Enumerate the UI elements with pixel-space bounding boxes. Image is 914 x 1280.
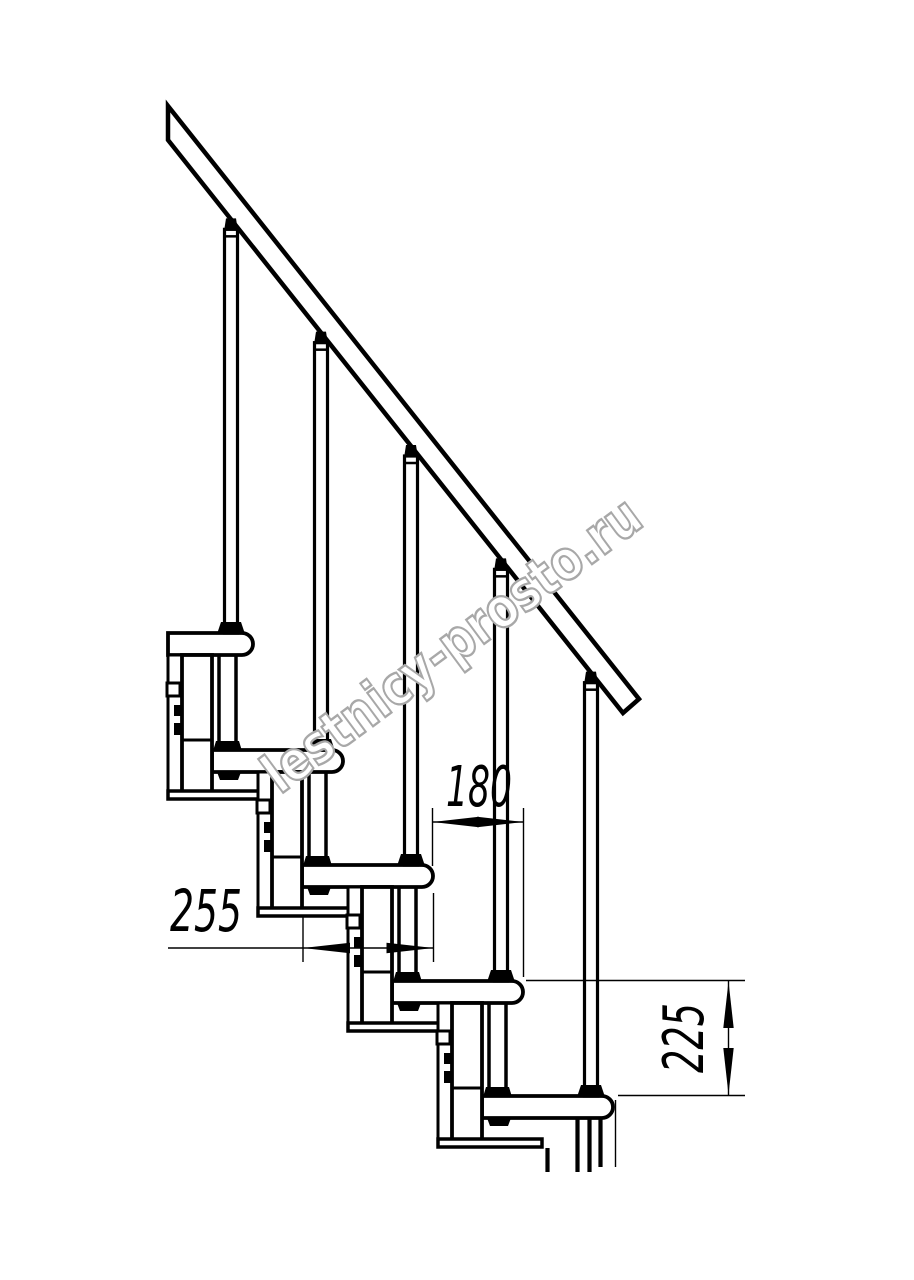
baluster-2 — [315, 343, 328, 750]
baluster-foot-icon — [577, 1085, 605, 1097]
module-column-1 — [182, 655, 212, 798]
dimension-label-rise: 225 — [652, 1003, 717, 1073]
tread-3 — [302, 865, 433, 887]
module-column-3 — [362, 887, 392, 1030]
baluster-5 — [585, 683, 598, 1096]
rod-clamp-icon — [307, 887, 331, 895]
rod-clamp-icon — [487, 1118, 511, 1126]
module-bolt-icon — [444, 1071, 453, 1083]
baluster-foot-icon — [397, 854, 425, 866]
staircase-drawing: 180 255 225 lestnicy-prosto.ru — [0, 0, 914, 1280]
tread-1 — [168, 633, 253, 655]
module-bolt-icon — [354, 955, 363, 967]
module-bolt-icon — [354, 937, 363, 948]
module-bolt-icon — [174, 705, 183, 716]
module-tab-3 — [347, 915, 360, 928]
rod-clamp-icon — [217, 772, 241, 780]
module-bolt-icon — [444, 1053, 453, 1064]
module-bolt-icon — [264, 822, 273, 833]
baluster-1 — [225, 229, 238, 633]
rod-foot-icon — [393, 972, 422, 982]
dimension-label-run: 180 — [446, 755, 512, 820]
drawing-page: 180 255 225 lestnicy-prosto.ru — [0, 0, 914, 1280]
rod-foot-icon — [483, 1087, 512, 1097]
tread-5 — [482, 1096, 613, 1118]
rod-foot-icon — [303, 856, 332, 866]
module-bolt-icon — [264, 840, 273, 852]
tread-4 — [392, 981, 523, 1003]
module-tab-2 — [257, 800, 270, 813]
module-tab-1 — [167, 683, 180, 696]
baluster-foot-icon — [217, 622, 245, 634]
module-bolt-icon — [174, 723, 183, 735]
rod-clamp-icon — [397, 1003, 421, 1011]
dimension-label-depth: 255 — [170, 877, 242, 945]
rod-foot-icon — [213, 741, 242, 751]
module-column-4 — [452, 1003, 482, 1146]
module-bottom-bar-1 — [168, 791, 272, 799]
baluster-foot-icon — [487, 970, 515, 982]
module-tab-4 — [437, 1031, 450, 1044]
module-bottom-bar-4 — [438, 1139, 542, 1147]
